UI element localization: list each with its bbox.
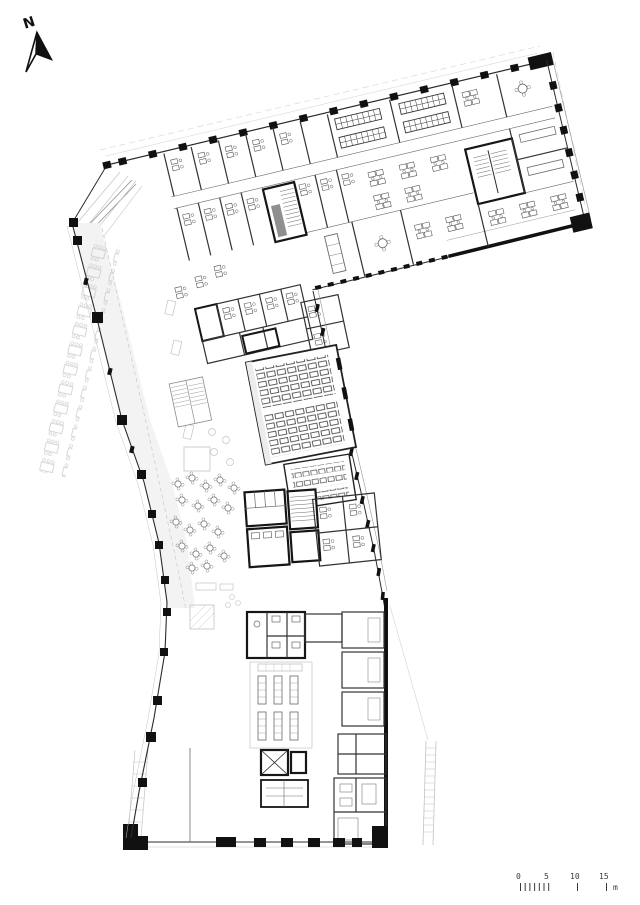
offices-midwing <box>172 249 313 367</box>
scale-label-10: 10 <box>570 872 580 881</box>
west-gallery <box>30 223 195 610</box>
core-lower <box>261 750 308 807</box>
south-facade <box>123 748 388 850</box>
corner-column-se <box>372 826 388 848</box>
scale-label-15: 15 <box>599 872 609 881</box>
workshop-tables <box>250 662 312 748</box>
stair-core-east <box>465 138 525 204</box>
east-rooms-lower <box>305 598 386 846</box>
north-arrow-icon: N <box>21 14 52 72</box>
open-plan-south <box>323 172 573 283</box>
scale-label-0: 0 <box>516 872 521 881</box>
scale-label-5: 5 <box>544 872 549 881</box>
facade-columns-east <box>538 80 593 232</box>
exterior-ramp-bottomright <box>423 741 436 845</box>
hall-stair <box>169 377 211 427</box>
hatched-square <box>190 605 214 629</box>
north-label: N <box>21 14 37 33</box>
scale-unit: m <box>613 883 618 892</box>
floor-plan-canvas: N 0 5 10 15 m <box>0 0 640 905</box>
corner-column-sw <box>123 824 148 850</box>
scale-bar: 0 5 10 15 m <box>516 872 618 892</box>
service-core-mid <box>244 487 320 567</box>
office-band-middle <box>177 145 455 261</box>
wc-cluster-lower <box>247 612 305 658</box>
scale-ticks <box>521 883 607 891</box>
upper-wing <box>59 50 593 345</box>
auditorium <box>246 345 358 465</box>
stair-core-west <box>263 182 307 242</box>
